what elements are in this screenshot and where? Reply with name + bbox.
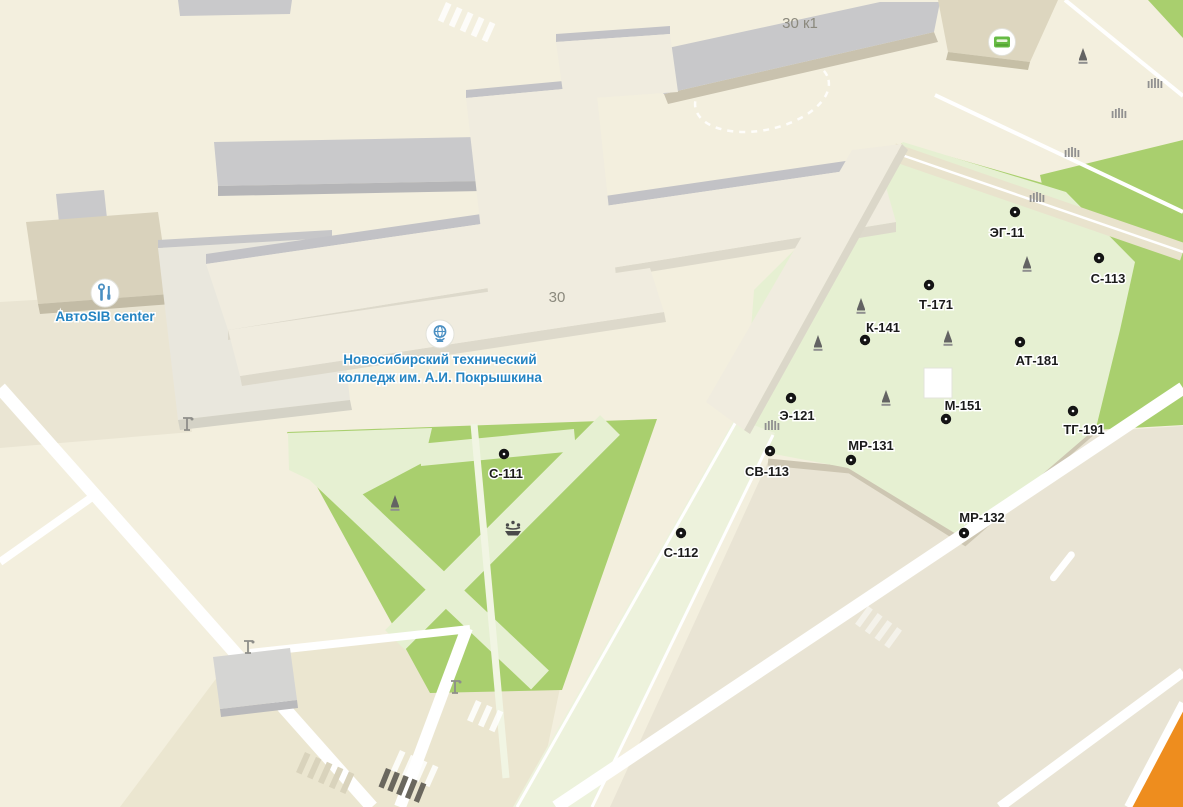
poi-marker-label: С-113 [1091, 271, 1126, 286]
poi-marker-label: МР-131 [848, 438, 894, 453]
poi-marker-label: С-111 [489, 466, 523, 481]
poi-dot-center [1098, 257, 1101, 260]
poi-dot-center [680, 532, 683, 535]
poi-marker-label: С-112 [664, 545, 699, 560]
building-label-30k1: 30 к1 [782, 15, 818, 32]
poi-dot-center [945, 418, 948, 421]
payment-card-icon [994, 37, 1010, 48]
avtosib-poi-icon[interactable] [91, 279, 119, 307]
poi-dot-center [503, 453, 506, 456]
poi-marker-label: Т-171 [919, 297, 953, 312]
map-viewport[interactable]: 30 к1 30 АвтоSIB center Новосибирский те… [0, 0, 1183, 807]
avtosib-label[interactable]: АвтоSIB center [55, 309, 155, 324]
poi-marker-label: АТ-181 [1016, 353, 1059, 368]
poi-marker-label: ЭГ-11 [990, 225, 1025, 240]
poi-marker-label: МР-132 [959, 510, 1005, 525]
poi-marker-label: М-151 [945, 398, 982, 413]
poi-dot-center [1072, 410, 1075, 413]
poi-marker-label: ТГ-191 [1063, 422, 1104, 437]
college-label-line1[interactable]: Новосибирский технический [343, 352, 536, 367]
poi-dot-center [850, 459, 853, 462]
poi-dot-center [864, 339, 867, 342]
poi-dot-center [769, 450, 772, 453]
poi-marker-label: Э-121 [779, 408, 814, 423]
college-poi-icon[interactable] [426, 320, 454, 348]
poi-marker-label: К-141 [866, 320, 900, 335]
poi-marker-label: СВ-113 [745, 464, 789, 479]
map-canvas[interactable]: 30 к1 30 АвтоSIB center Новосибирский те… [0, 0, 1183, 807]
poi-dot-center [1019, 341, 1022, 344]
poi-dot-center [790, 397, 793, 400]
college-label-line2[interactable]: колледж им. А.И. Покрышкина [338, 370, 542, 385]
building-label-30: 30 [549, 289, 566, 306]
poi-dot-center [928, 284, 931, 287]
poi-dot-center [963, 532, 966, 535]
poi-dot-center [1014, 211, 1017, 214]
atm-poi-icon[interactable] [989, 29, 1016, 56]
